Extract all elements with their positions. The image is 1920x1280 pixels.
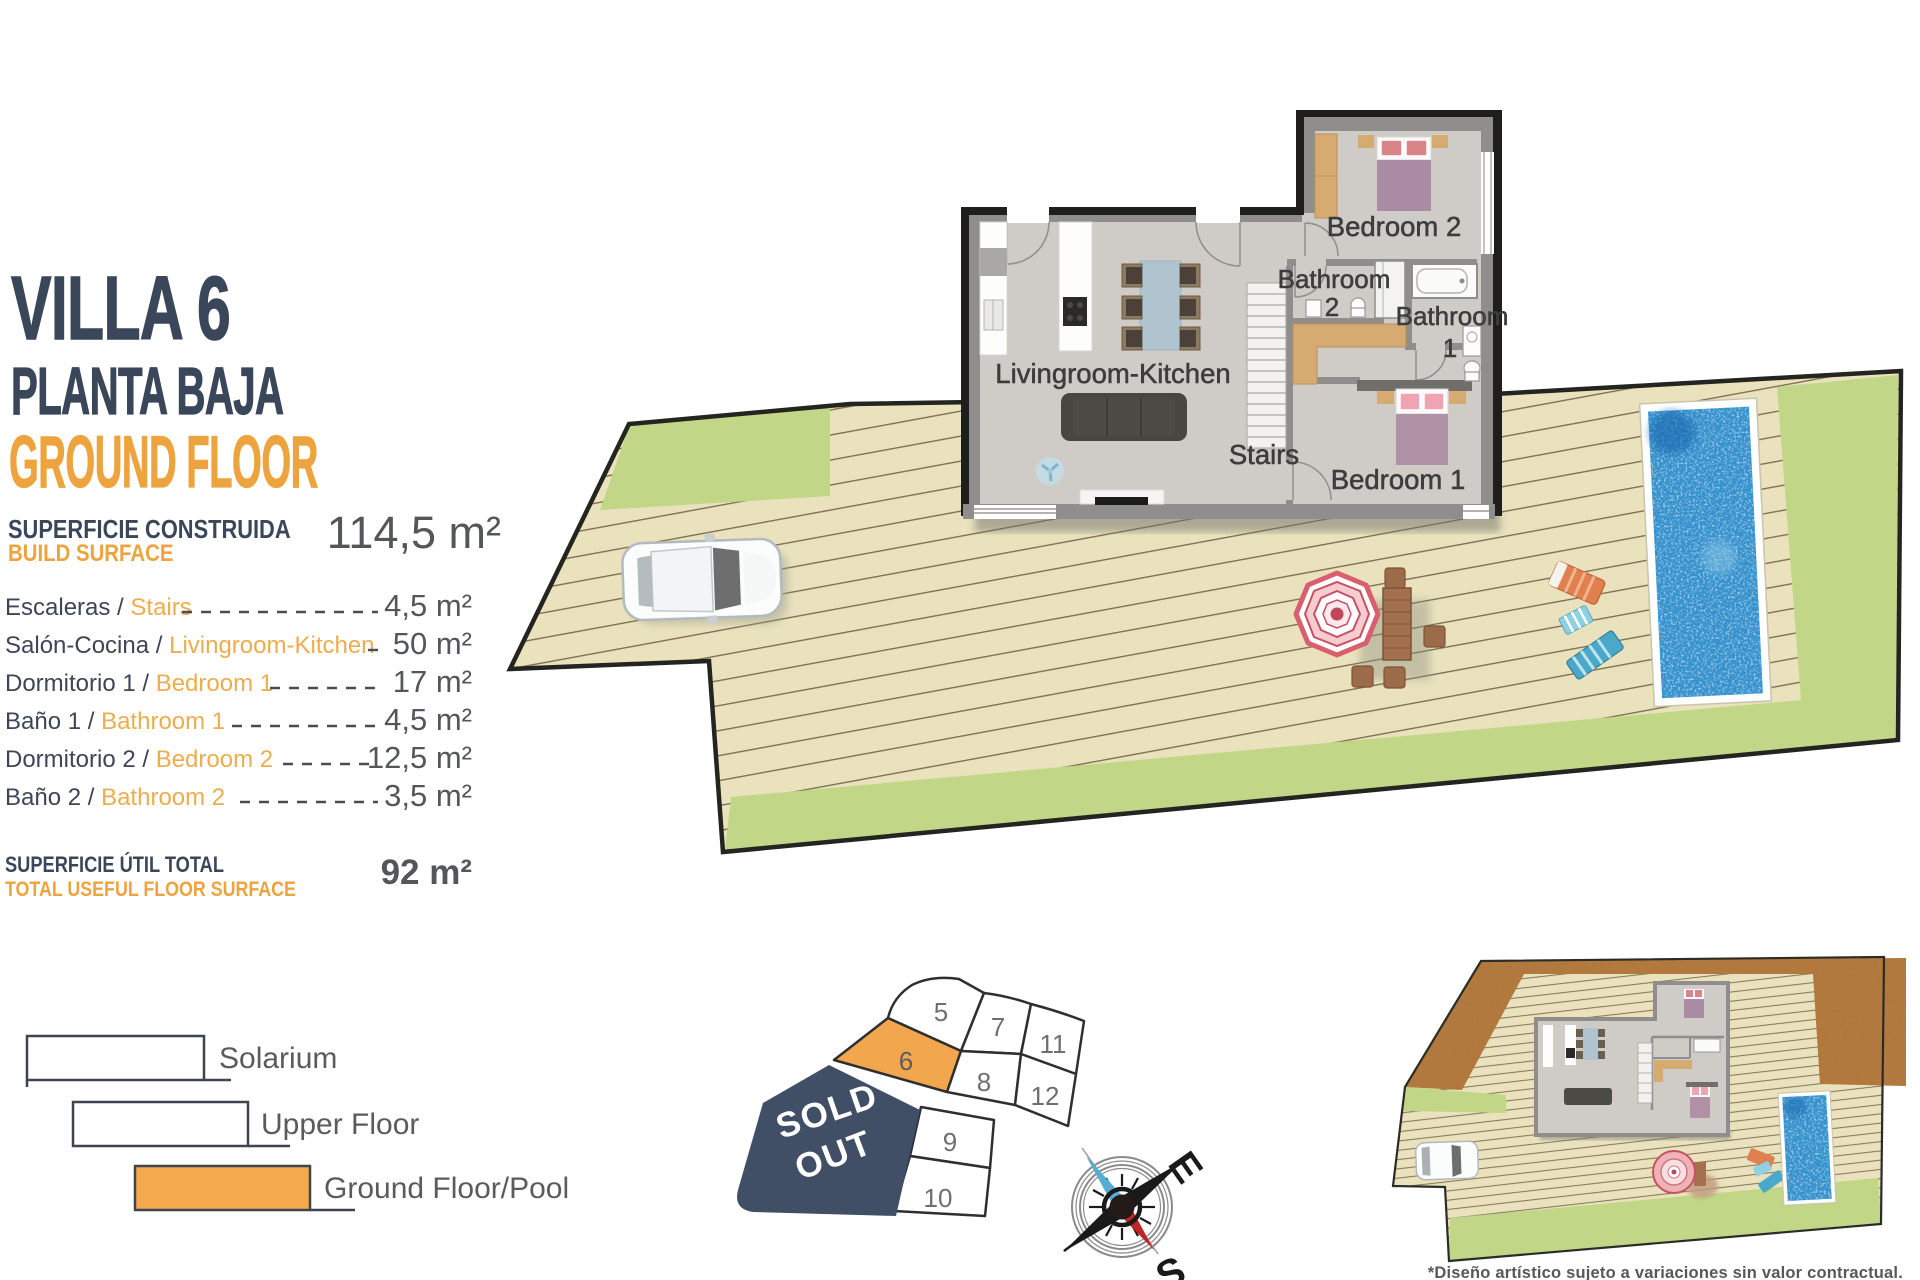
svg-text:2: 2 <box>1325 292 1339 322</box>
svg-text:50 m²: 50 m² <box>393 626 472 661</box>
svg-text:Dormitorio 2 / Bedroom 2: Dormitorio 2 / Bedroom 2 <box>5 746 273 773</box>
svg-text:Baño 1 / Bathroom 1: Baño 1 / Bathroom 1 <box>5 708 225 735</box>
svg-text:BUILD SURFACE: BUILD SURFACE <box>8 539 173 566</box>
svg-text:12,5 m²: 12,5 m² <box>367 740 472 775</box>
svg-text:11: 11 <box>1040 1029 1067 1059</box>
svg-text:Stairs: Stairs <box>1229 439 1299 470</box>
svg-text:Bathroom: Bathroom <box>1278 264 1391 294</box>
svg-text:Baño 2 / Bathroom 2: Baño 2 / Bathroom 2 <box>5 784 225 811</box>
svg-text:12: 12 <box>1031 1081 1060 1111</box>
svg-text:TOTAL USEFUL FLOOR SURFACE: TOTAL USEFUL FLOOR SURFACE <box>5 878 296 902</box>
svg-text:VILLA 6: VILLA 6 <box>11 258 230 359</box>
svg-text:10: 10 <box>924 1183 953 1213</box>
svg-text:5: 5 <box>934 997 948 1027</box>
svg-text:9: 9 <box>943 1127 957 1157</box>
svg-text:Livingroom-Kitchen: Livingroom-Kitchen <box>995 358 1230 389</box>
svg-text:Upper Floor: Upper Floor <box>261 1108 419 1141</box>
svg-text:4,5 m²: 4,5 m² <box>384 702 472 737</box>
svg-text:92 m²: 92 m² <box>381 853 472 892</box>
svg-text:17 m²: 17 m² <box>393 664 472 699</box>
svg-text:Ground Floor/Pool: Ground Floor/Pool <box>324 1172 569 1205</box>
svg-text:8: 8 <box>977 1067 991 1097</box>
svg-text:3,5 m²: 3,5 m² <box>384 778 472 813</box>
svg-text:7: 7 <box>991 1012 1005 1042</box>
svg-text:Bathroom: Bathroom <box>1396 301 1509 331</box>
svg-text:114,5 m²: 114,5 m² <box>327 507 501 558</box>
svg-text:Solarium: Solarium <box>219 1042 337 1075</box>
svg-text:Dormitorio 1 / Bedroom 1: Dormitorio 1 / Bedroom 1 <box>5 670 273 697</box>
svg-text:Bedroom 1: Bedroom 1 <box>1331 464 1466 495</box>
svg-text:Bedroom 2: Bedroom 2 <box>1327 211 1462 242</box>
svg-text:4,5 m²: 4,5 m² <box>384 588 472 623</box>
svg-text:PLANTA BAJA: PLANTA BAJA <box>11 353 283 428</box>
svg-text:GROUND FLOOR: GROUND FLOOR <box>9 422 318 503</box>
svg-text:Salón-Cocina / Livingroom-Kitc: Salón-Cocina / Livingroom-Kitchen <box>5 632 375 659</box>
svg-text:Escaleras / Stairs: Escaleras / Stairs <box>5 594 192 621</box>
svg-text:SUPERFICIE ÚTIL TOTAL: SUPERFICIE ÚTIL TOTAL <box>5 851 224 877</box>
svg-text:1: 1 <box>1443 333 1457 363</box>
svg-text:6: 6 <box>899 1046 913 1076</box>
svg-text:*Diseño artístico sujeto a var: *Diseño artístico sujeto a variaciones s… <box>1428 1264 1903 1280</box>
